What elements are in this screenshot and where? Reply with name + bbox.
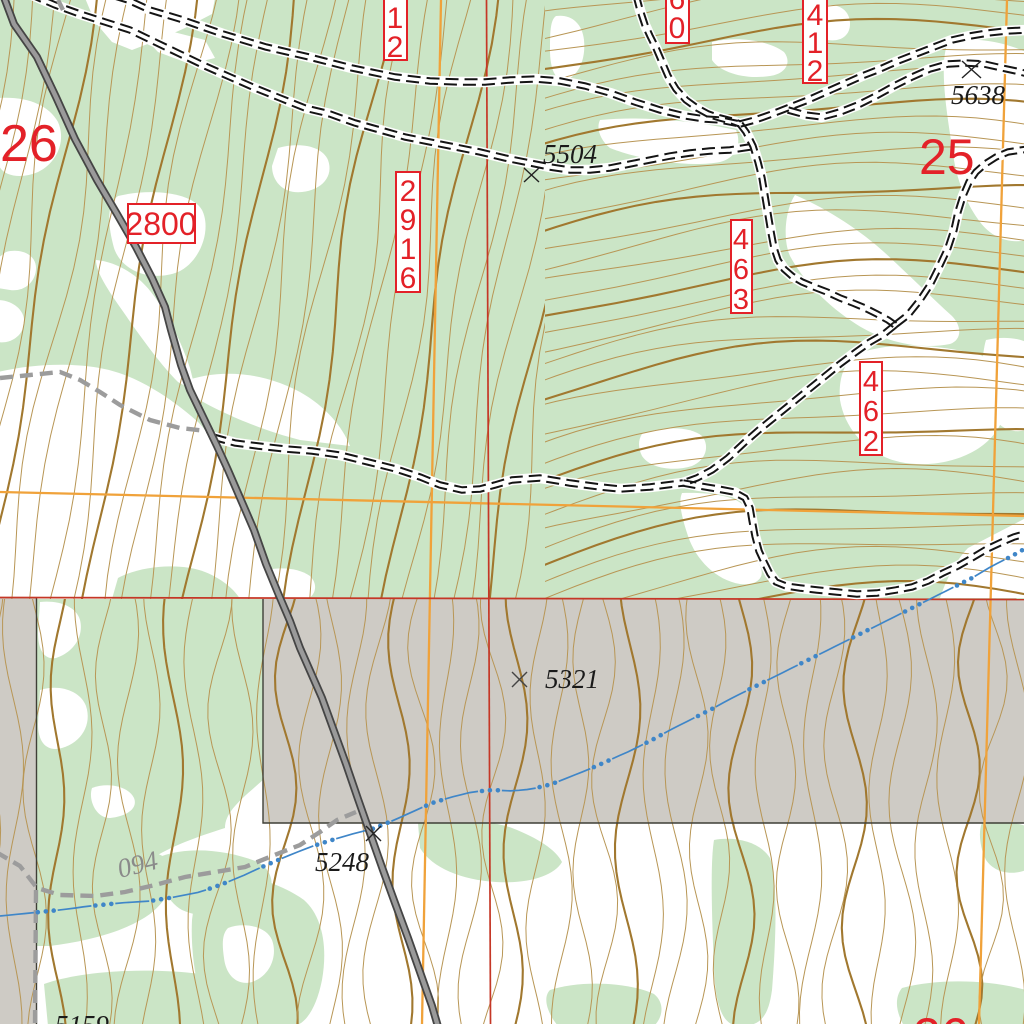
- svg-text:5638: 5638: [951, 80, 1006, 110]
- svg-text:2: 2: [863, 426, 879, 458]
- svg-text:4: 4: [863, 366, 879, 398]
- svg-text:5504: 5504: [543, 139, 597, 169]
- svg-text:3: 3: [733, 284, 749, 316]
- svg-text:5159: 5159: [55, 1010, 110, 1024]
- svg-text:6: 6: [400, 262, 417, 295]
- svg-text:5321: 5321: [545, 664, 599, 694]
- svg-text:26: 26: [913, 1008, 969, 1024]
- svg-text:2800: 2800: [125, 206, 196, 242]
- svg-text:6: 6: [733, 254, 749, 286]
- svg-text:5248: 5248: [315, 847, 370, 877]
- svg-text:2: 2: [807, 55, 824, 88]
- svg-text:26: 26: [0, 115, 58, 173]
- svg-text:2: 2: [387, 31, 404, 64]
- svg-text:6: 6: [863, 396, 879, 428]
- svg-text:0: 0: [669, 12, 686, 45]
- svg-text:25: 25: [919, 129, 975, 185]
- svg-text:4: 4: [733, 224, 749, 256]
